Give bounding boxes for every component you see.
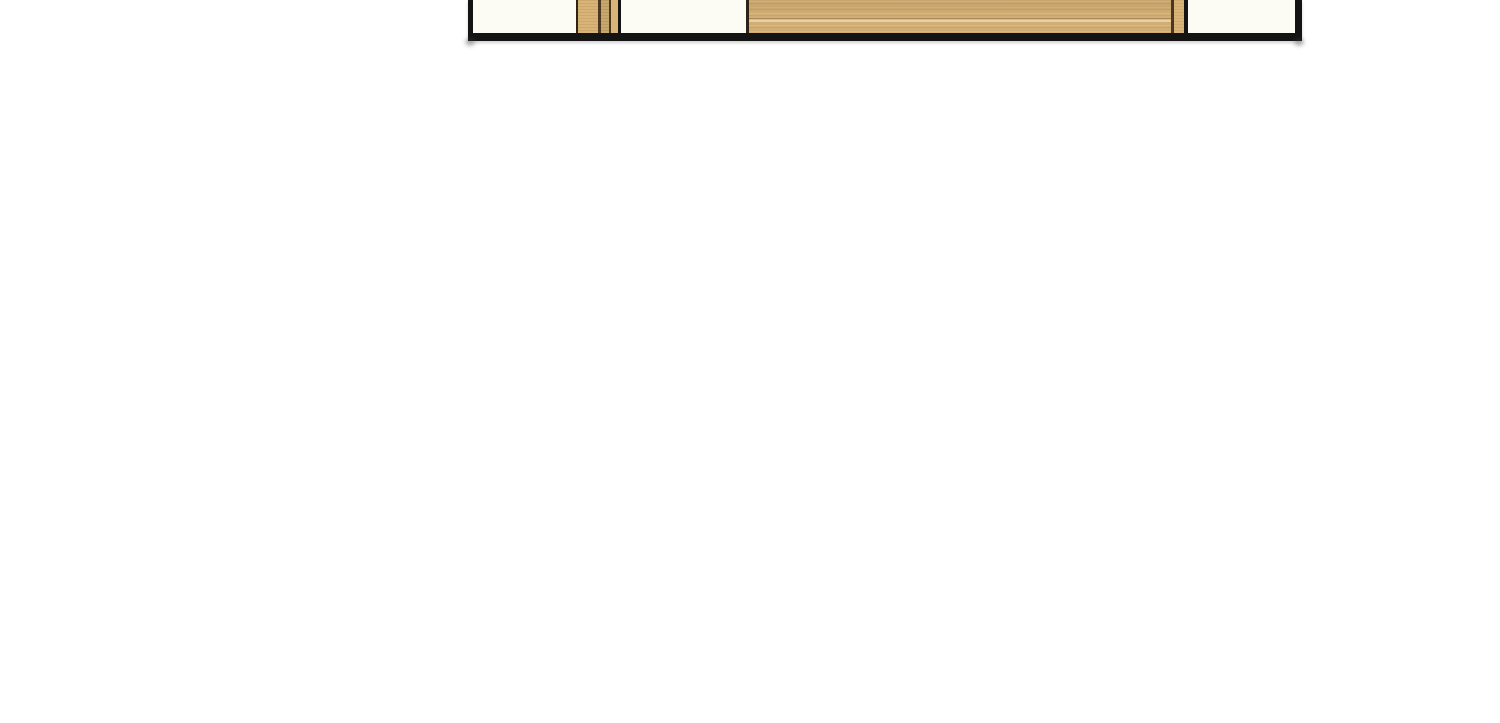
wood-post-outline-right [618, 0, 621, 33]
tabletop-plank-narrow [1174, 0, 1184, 33]
wood-post-plank-2 [611, 0, 618, 33]
panel-interior [473, 0, 1295, 33]
wood-post-stripe-olive [601, 0, 609, 33]
wood-grain-seam-light [749, 20, 1171, 22]
comic-panel-fragment [468, 0, 1302, 41]
wood-grain-seam-dark [749, 18, 1171, 19]
comic-reader-canvas [0, 0, 1500, 723]
tabletop-plank-wide [749, 0, 1171, 33]
wood-post [576, 0, 621, 33]
wood-tabletop [746, 0, 1188, 33]
wood-post-plank [578, 0, 598, 33]
